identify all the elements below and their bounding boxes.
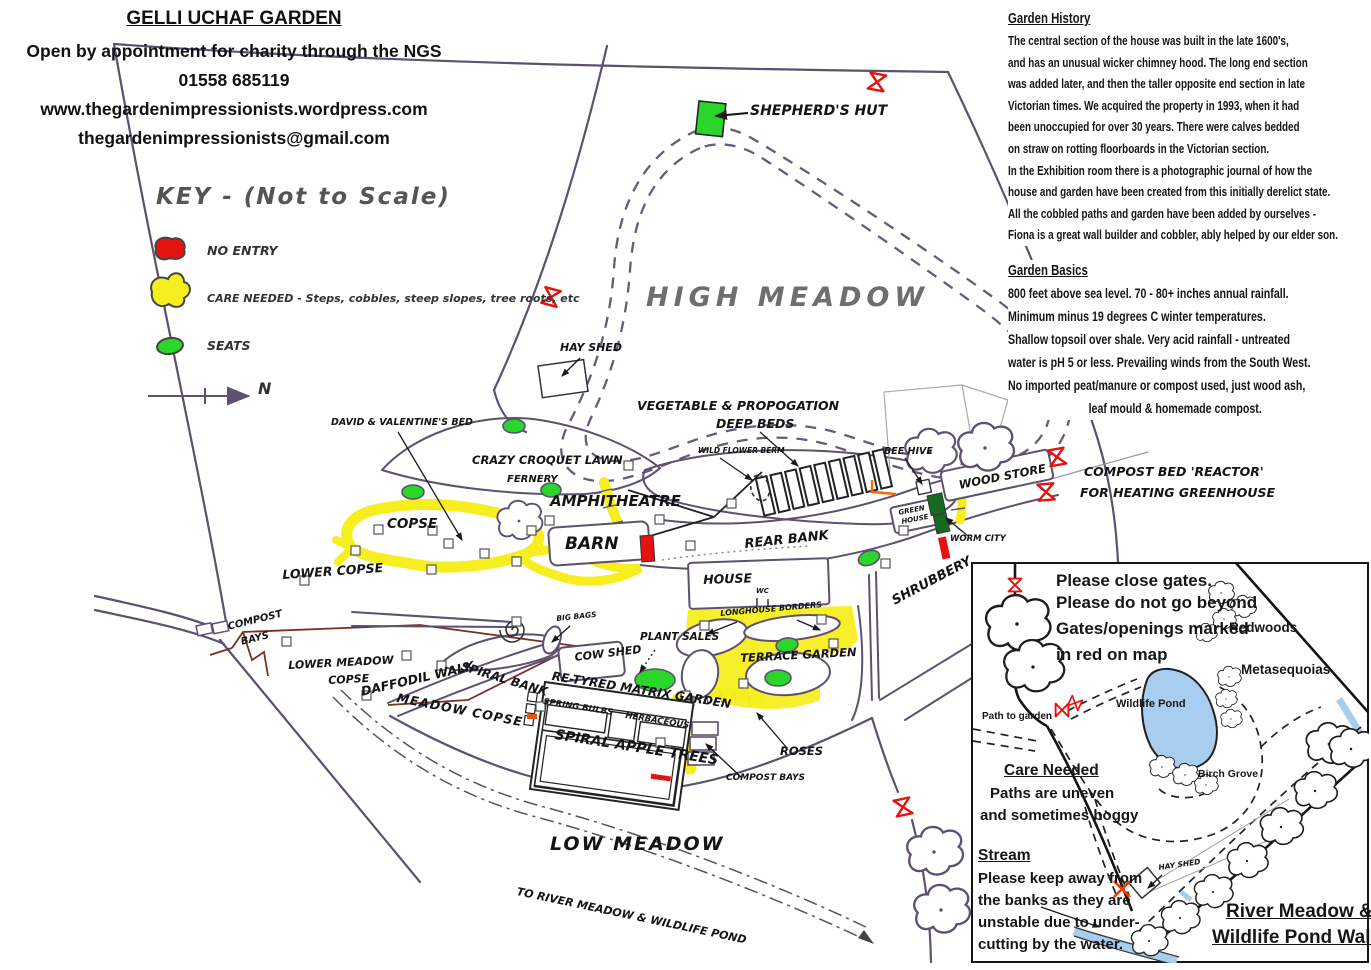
wildlife-pond-label: Wildlife Pond bbox=[1116, 699, 1186, 710]
stream-line-3: unstable due to under- bbox=[978, 915, 1140, 930]
garden-history-title: Garden History bbox=[1008, 8, 1371, 30]
history-line: The central section of the house was bui… bbox=[1008, 30, 1371, 52]
no-entry-patch bbox=[938, 536, 950, 559]
stream-title: Stream bbox=[978, 848, 1031, 864]
high-meadow-label: HIGH MEADOW bbox=[646, 284, 929, 311]
crazy-croquet-lawn-label: CRAZY CROQUET LAWN bbox=[472, 455, 623, 467]
basics-line: 800 feet above sea level. 70 - 80+ inche… bbox=[1008, 282, 1371, 305]
history-line: In the Exhibition room there is a photog… bbox=[1008, 160, 1371, 182]
garden-basics-title: Garden Basics bbox=[1008, 260, 1371, 282]
path-to-garden-label: Path to garden bbox=[982, 712, 1052, 722]
wild-flower-berm-label: WILD FLOWER BERM bbox=[698, 447, 785, 455]
david-valentines-bed-label: DAVID & VALENTINE'S BED bbox=[331, 418, 473, 428]
stream-line-1: Please keep away from bbox=[978, 871, 1142, 886]
care-line-1: Paths are uneven bbox=[990, 786, 1114, 801]
seats-key-icon bbox=[156, 336, 184, 355]
key-care-needed-label: CARE NEEDED - Steps, cobbles, steep slop… bbox=[207, 293, 580, 304]
basics-line: No imported peat/manure or compost used,… bbox=[1008, 374, 1371, 397]
no-entry-key-icon bbox=[155, 238, 184, 260]
compost-reactor-label-2: FOR HEATING GREENHOUSE bbox=[1080, 487, 1275, 500]
house-label: HOUSE bbox=[703, 572, 752, 586]
email[interactable]: thegardenimpressionists@gmail.com bbox=[8, 124, 460, 153]
compost-reactor-label-1: COMPOST BED 'REACTOR' bbox=[1084, 466, 1264, 479]
inset-notice-4: in red on map bbox=[1056, 646, 1167, 663]
stream-line-2: the banks as they are bbox=[978, 893, 1131, 908]
hay-shed-label: HAY SHED bbox=[560, 342, 622, 353]
shepherds-hut-label: SHEPHERD'S HUT bbox=[750, 104, 887, 118]
orange-patch bbox=[527, 714, 537, 719]
low-meadow-label: LOW MEADOW bbox=[550, 835, 725, 854]
history-line: Fiona is a great wall builder and cobble… bbox=[1008, 224, 1371, 246]
wildlife-pond-shape bbox=[1142, 669, 1217, 769]
roses-label: ROSES bbox=[780, 746, 823, 758]
inset-notice-2: Please do not go beyond bbox=[1056, 594, 1257, 611]
garden-basics-block: Garden Basics 800 feet above sea level. … bbox=[1008, 260, 1371, 420]
stream-line-4: cutting by the water. bbox=[978, 937, 1123, 952]
no-entry-patch bbox=[640, 535, 655, 562]
history-line: been unoccupied for over 30 years. There… bbox=[1008, 116, 1371, 138]
history-line: All the cobbled paths and garden have be… bbox=[1008, 203, 1371, 225]
birch-grove-label: Birch Grove bbox=[1198, 769, 1258, 780]
garden-map-page: GELLI UCHAF GARDEN Open by appointment f… bbox=[0, 0, 1371, 970]
history-line: Victorian times. We acquired the propert… bbox=[1008, 95, 1371, 117]
garden-title: GELLI UCHAF GARDEN bbox=[8, 8, 460, 30]
fernery-label: FERNERY bbox=[507, 475, 558, 485]
care-needed-title: Care Needed bbox=[1004, 763, 1099, 779]
dotted-path bbox=[662, 546, 808, 560]
basics-line: Shallow topsoil over shale. Very acid ra… bbox=[1008, 328, 1371, 351]
basics-line: water is pH 5 or less. Prevailing winds … bbox=[1008, 351, 1371, 374]
veg-beds-label-1: VEGETABLE & PROPOGATION bbox=[637, 400, 839, 413]
plant-sales-label: PLANT SALES bbox=[640, 632, 719, 643]
basics-line: leaf mould & homemade compost. bbox=[1008, 397, 1342, 420]
key-title: KEY - (Not to Scale) bbox=[156, 186, 451, 209]
metasequoias-label: Metasequoias bbox=[1241, 663, 1330, 677]
history-line: house and garden have been created from … bbox=[1008, 181, 1371, 203]
north-arrow-icon bbox=[148, 388, 248, 404]
shepherds-hut bbox=[696, 101, 748, 137]
barn-label: BARN bbox=[565, 536, 618, 553]
wc-label: WC bbox=[756, 588, 769, 595]
inset-title-2: Wildlife Pond Walk bbox=[1212, 928, 1371, 947]
garden-history-block: Garden History The central section of th… bbox=[1008, 8, 1371, 246]
inset-notice-3: Gates/openings marked bbox=[1056, 620, 1249, 637]
track-arrowhead bbox=[858, 930, 874, 944]
north-label: N bbox=[258, 381, 271, 397]
inset-notice-1: Please close gates. bbox=[1056, 568, 1212, 594]
history-line: on straw on rotting floorboards in the V… bbox=[1008, 138, 1371, 160]
key-icons bbox=[148, 238, 248, 404]
history-line: was added later, and then the taller opp… bbox=[1008, 73, 1371, 95]
open-by-appointment: Open by appointment for charity through … bbox=[8, 37, 460, 66]
amphitheatre-label: AMPHITHEATRE bbox=[550, 494, 681, 509]
inset-title-1: River Meadow & bbox=[1226, 902, 1371, 921]
bee-hive-label: BEE HIVE bbox=[884, 447, 933, 457]
veg-beds-label-2: DEEP BEDS bbox=[716, 418, 794, 431]
website[interactable]: www.thegardenimpressionists.wordpress.co… bbox=[8, 95, 460, 124]
basics-line: Minimum minus 19 degrees C winter temper… bbox=[1008, 305, 1371, 328]
bee-hive-box bbox=[916, 479, 931, 494]
key-seats-label: SEATS bbox=[207, 340, 251, 353]
key-no-entry-label: NO ENTRY bbox=[207, 245, 278, 258]
worm-city-label: WORM CITY bbox=[950, 535, 1006, 544]
hay-shed-building bbox=[538, 360, 588, 398]
redwoods-label: Redwoods bbox=[1229, 621, 1297, 635]
copse-label: COPSE bbox=[387, 518, 437, 532]
history-line: and has an unusual wicker chimney hood. … bbox=[1008, 52, 1371, 74]
title-block: GELLI UCHAF GARDEN Open by appointment f… bbox=[8, 8, 460, 153]
phone-number: 01558 685119 bbox=[8, 66, 460, 95]
care-needed-key-icon bbox=[151, 273, 190, 307]
compost-bays-lower-label: COMPOST BAYS bbox=[726, 774, 805, 783]
care-line-2: and sometimes boggy bbox=[980, 808, 1138, 823]
